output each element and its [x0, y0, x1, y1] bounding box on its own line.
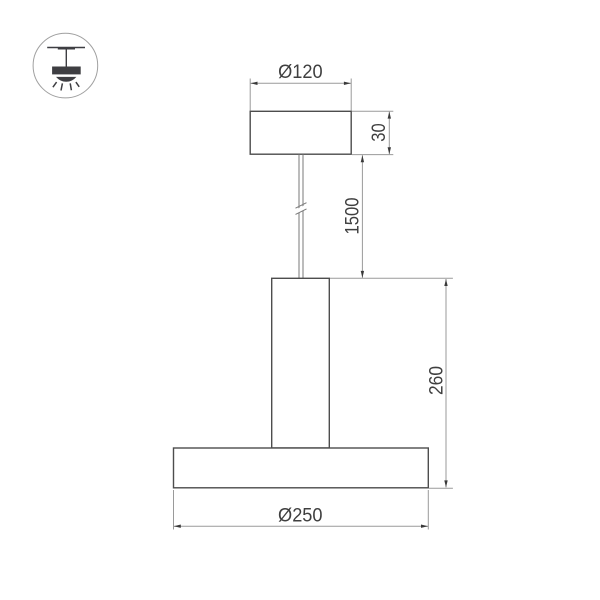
svg-text:1500: 1500 — [342, 197, 364, 234]
svg-text:Ø250: Ø250 — [278, 505, 323, 527]
svg-text:260: 260 — [426, 366, 448, 395]
svg-text:30: 30 — [368, 123, 390, 142]
svg-text:Ø120: Ø120 — [278, 61, 323, 83]
